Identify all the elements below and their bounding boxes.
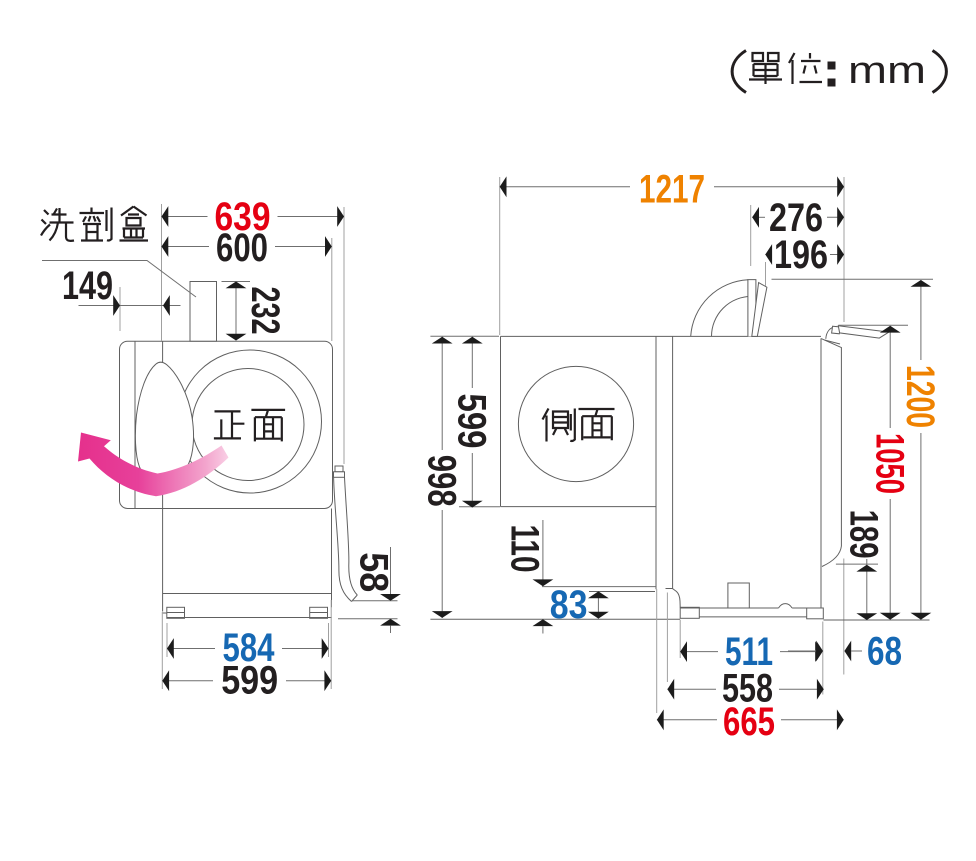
svg-text:83: 83 — [550, 583, 588, 627]
svg-text:58: 58 — [352, 552, 396, 592]
svg-text:1217: 1217 — [639, 168, 705, 212]
svg-text:68: 68 — [867, 630, 902, 674]
svg-text:mm: mm — [848, 50, 926, 92]
svg-text:600: 600 — [216, 226, 268, 270]
svg-text:110: 110 — [502, 525, 546, 573]
svg-text:1050: 1050 — [867, 433, 911, 494]
svg-text:149: 149 — [62, 264, 113, 308]
svg-text:232: 232 — [243, 287, 287, 335]
svg-text:599: 599 — [221, 659, 278, 703]
svg-text:665: 665 — [723, 700, 775, 744]
svg-text:189: 189 — [841, 510, 885, 559]
svg-text:998: 998 — [419, 455, 463, 507]
svg-text:599: 599 — [450, 394, 494, 449]
svg-text:1200: 1200 — [898, 365, 942, 428]
svg-text:196: 196 — [774, 233, 828, 277]
